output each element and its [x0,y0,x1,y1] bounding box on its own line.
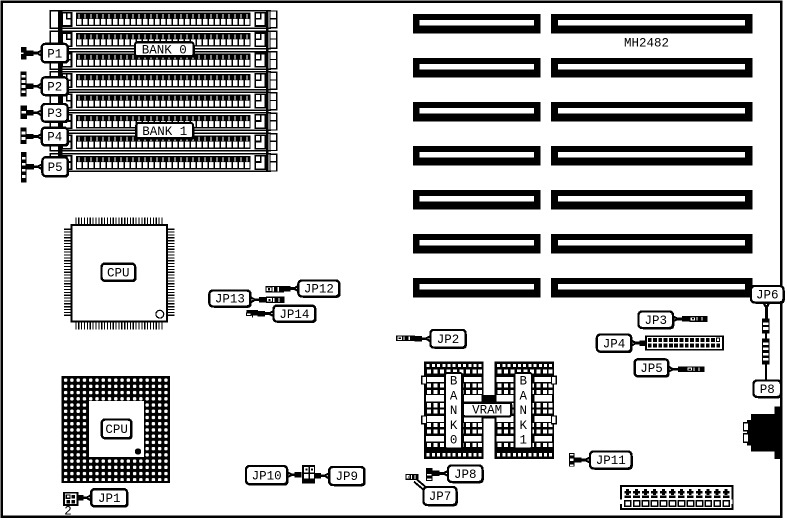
svg-text:P5: P5 [48,161,63,175]
svg-text:P2: P2 [47,80,62,94]
svg-text:N: N [450,404,458,418]
svg-text:JP5: JP5 [640,362,663,376]
svg-text:BANK 1: BANK 1 [142,125,187,139]
svg-text:2: 2 [64,505,72,519]
svg-text:JP13: JP13 [215,293,245,307]
svg-text:MH2482: MH2482 [624,37,669,51]
svg-text:JP14: JP14 [279,308,309,322]
svg-text:P8: P8 [760,383,775,397]
svg-text:P3: P3 [47,107,62,121]
svg-text:VRAM: VRAM [472,404,502,418]
svg-text:JP3: JP3 [645,314,668,328]
svg-text:A: A [519,389,527,403]
svg-text:JP8: JP8 [454,468,477,482]
svg-text:K: K [519,419,527,433]
svg-text:JP11: JP11 [596,454,626,468]
svg-text:B: B [519,375,527,389]
svg-text:JP9: JP9 [336,470,359,484]
svg-text:CPU: CPU [105,423,128,437]
svg-text:JP4: JP4 [603,337,626,351]
svg-text:0: 0 [450,434,458,448]
svg-text:B: B [450,375,458,389]
svg-text:CPU: CPU [107,266,130,280]
svg-text:JP6: JP6 [756,288,779,302]
svg-text:BANK 0: BANK 0 [142,44,187,58]
svg-text:JP1: JP1 [98,492,121,506]
svg-text:K: K [450,419,458,433]
svg-text:1: 1 [519,434,527,448]
svg-text:JP12: JP12 [304,283,334,297]
svg-text:P4: P4 [47,131,62,145]
svg-text:N: N [519,404,527,418]
svg-text:P1: P1 [47,47,62,61]
svg-text:JP10: JP10 [252,469,282,483]
svg-text:A: A [450,389,458,403]
svg-text:JP2: JP2 [437,333,460,347]
svg-text:JP7: JP7 [429,490,452,504]
